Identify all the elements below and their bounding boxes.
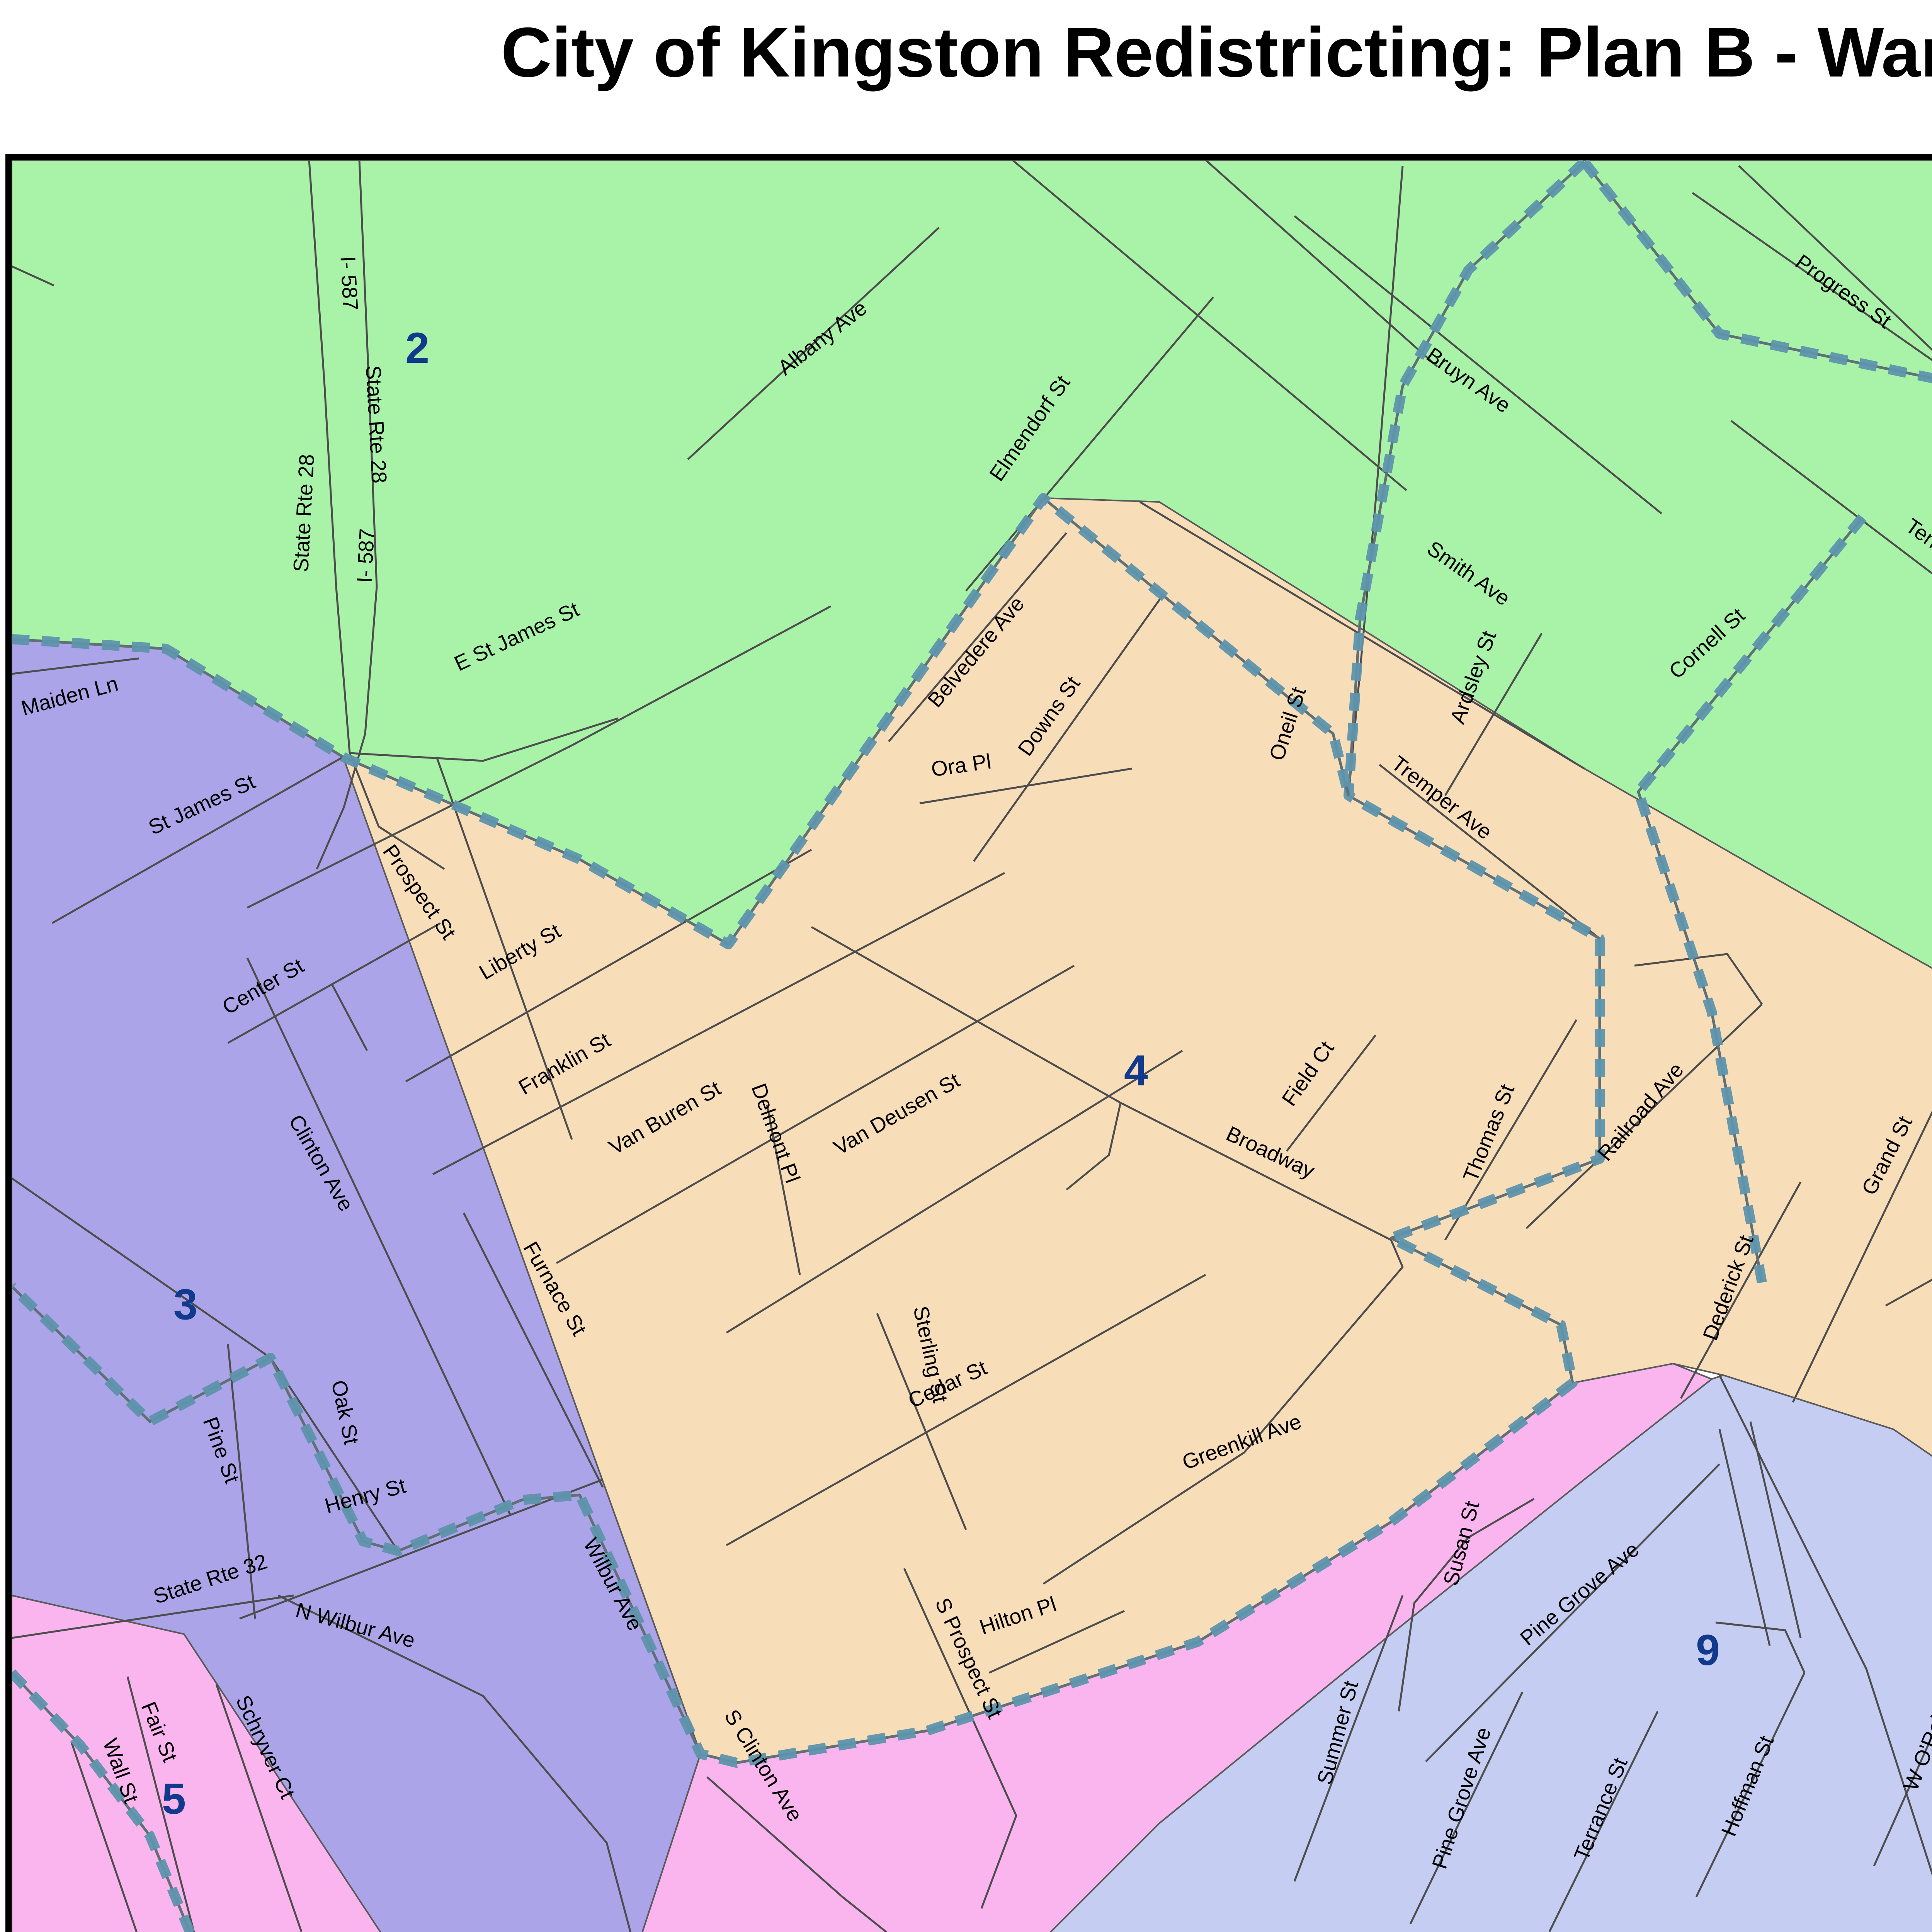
ward-number-9: 9: [1696, 1626, 1720, 1674]
page-title: City of Kingston Redistricting: Plan B -…: [0, 12, 1932, 93]
ward-number-5: 5: [162, 1775, 186, 1823]
street-label: I- 587: [336, 255, 362, 311]
map-area: I- 587State Rte 28State Rte 28I- 587Alba…: [5, 154, 1932, 1932]
ward-number-2: 2: [405, 324, 429, 372]
ward-number-4: 4: [1124, 1046, 1148, 1095]
map-page: City of Kingston Redistricting: Plan B -…: [0, 0, 1932, 1932]
ward-map: I- 587State Rte 28State Rte 28I- 587Alba…: [12, 160, 1932, 1932]
ward-number-3: 3: [173, 1280, 197, 1328]
street-label: I- 587: [352, 528, 379, 583]
